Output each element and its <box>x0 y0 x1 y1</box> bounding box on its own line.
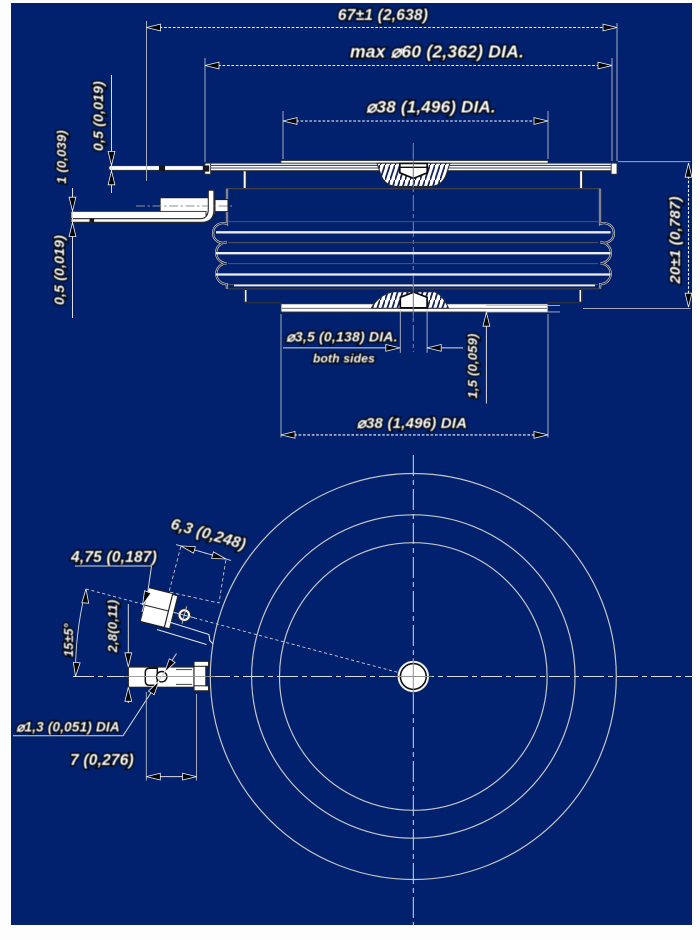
svg-text:⌀38 (1,496) DIA: ⌀38 (1,496) DIA <box>357 415 467 432</box>
svg-text:4,75 (0,187): 4,75 (0,187) <box>70 549 157 566</box>
svg-text:1 (0,039): 1 (0,039) <box>54 130 69 184</box>
svg-text:20±1 (0,787): 20±1 (0,787) <box>667 196 684 284</box>
svg-text:1,5 (0,059): 1,5 (0,059) <box>465 333 480 398</box>
svg-text:67±1 (2,638): 67±1 (2,638) <box>338 7 428 24</box>
svg-text:2,8(0,11): 2,8(0,11) <box>105 600 120 654</box>
svg-text:⌀3,5 (0,138) DIA.: ⌀3,5 (0,138) DIA. <box>286 329 397 345</box>
svg-text:7 (0,276): 7 (0,276) <box>70 752 134 769</box>
svg-text:both sides: both sides <box>313 352 375 366</box>
svg-text:⌀38 (1,496) DIA.: ⌀38 (1,496) DIA. <box>366 98 496 117</box>
svg-text:0,5 (0,019): 0,5 (0,019) <box>51 235 67 305</box>
svg-text:15±5°: 15±5° <box>62 622 76 657</box>
svg-text:0,5 (0,019): 0,5 (0,019) <box>90 81 106 151</box>
svg-text:⌀1,3 (0,051) DIA: ⌀1,3 (0,051) DIA <box>16 720 120 735</box>
svg-text:max ⌀60 (2,362) DIA.: max ⌀60 (2,362) DIA. <box>350 42 524 62</box>
